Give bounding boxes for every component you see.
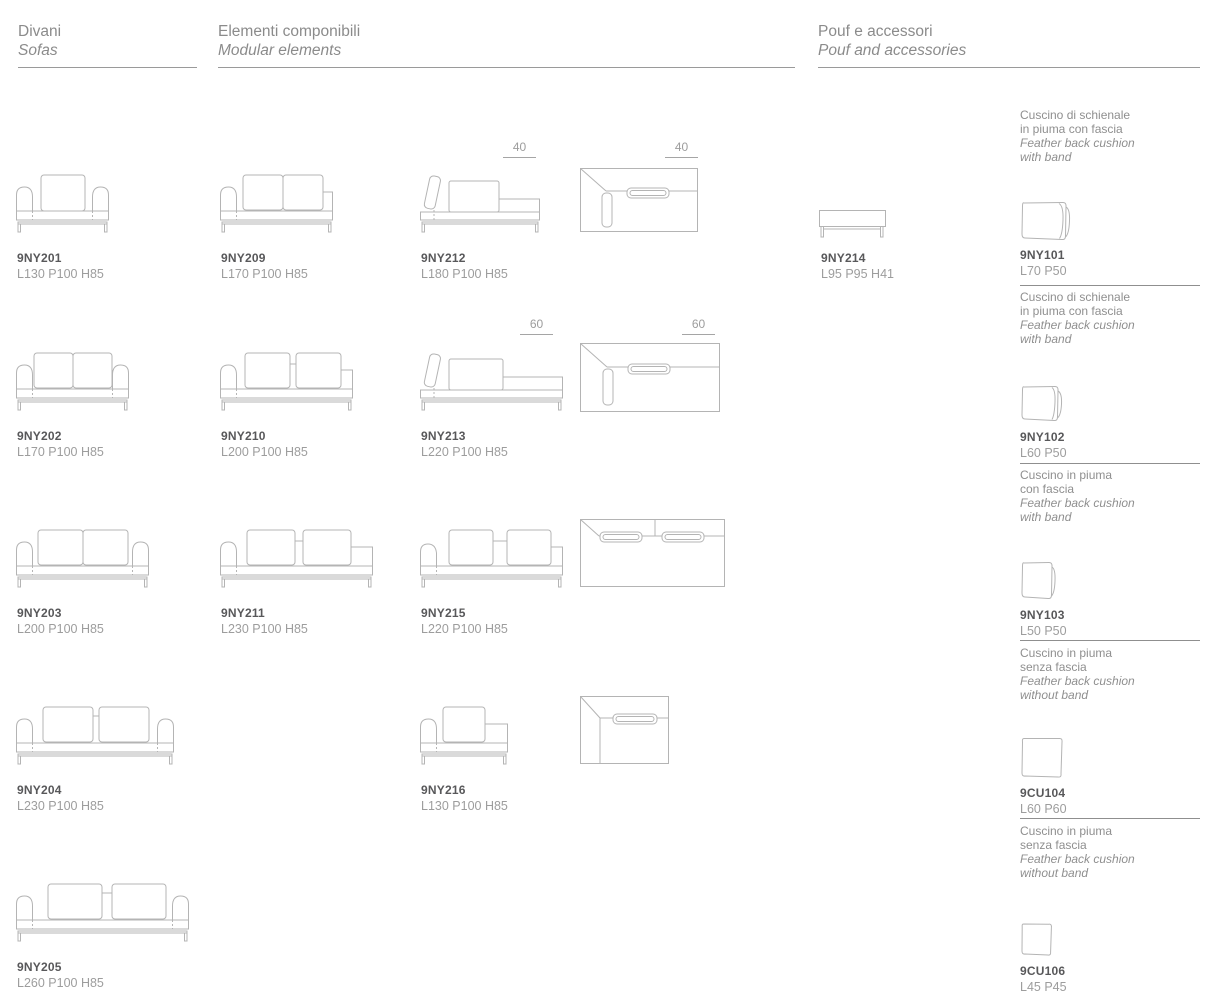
product-dims: L60 P50: [1020, 446, 1202, 460]
sofa-front-drawing: [419, 518, 564, 593]
product-card-9NY205: 9NY205 L260 P100 H85: [15, 872, 190, 990]
product-dims: L60 P60: [1020, 802, 1202, 816]
product-code: 9NY210: [221, 429, 354, 443]
accessory-block-9NY101: Cuscino di schienale in piuma con fascia…: [1020, 108, 1202, 278]
accessory-description-it: in piuma con fascia: [1020, 304, 1202, 318]
product-card-9NY209: 9NY209 L170 P100 H85: [219, 163, 334, 281]
product-dims: L95 P95 H41: [821, 267, 894, 281]
sofa-front-drawing: [419, 163, 541, 238]
sofa-plan-drawing-9NY216: [580, 696, 669, 769]
product-code: 9NY214: [821, 251, 894, 265]
product-code: 9NY103: [1020, 608, 1202, 622]
depth-dimension-label: 60: [682, 317, 715, 335]
section-rule-modular: [218, 67, 795, 68]
sofa-front-drawing: [419, 341, 564, 416]
sofa-front-drawing: [15, 518, 150, 593]
product-dims: L200 P100 H85: [17, 622, 150, 636]
product-card-9NY216: 9NY216 L130 P100 H85: [419, 695, 509, 813]
section-title-it: Divani: [18, 22, 61, 41]
product-dims: L170 P100 H85: [221, 267, 334, 281]
product-code: 9CU104: [1020, 786, 1202, 800]
accessory-description-en: with band: [1020, 332, 1202, 346]
product-dims: L130 P100 H85: [17, 267, 110, 281]
product-dims: L50 P50: [1020, 624, 1202, 638]
accessory-block-9NY103: Cuscino in piuma con fascia Feather back…: [1020, 468, 1202, 638]
product-card-9NY204: 9NY204 L230 P100 H85: [15, 695, 175, 813]
product-card-9NY212: 9NY212 L180 P100 H85: [419, 163, 541, 281]
accessory-block-9NY102: Cuscino di schienale in piuma con fascia…: [1020, 290, 1202, 460]
product-code: 9NY209: [221, 251, 334, 265]
accessory-description-en: Feather back cushion: [1020, 318, 1202, 332]
product-dims: L260 P100 H85: [17, 976, 190, 990]
product-code: 9NY211: [221, 606, 374, 620]
sofa-front-drawing: [15, 695, 175, 770]
product-dims: L180 P100 H85: [421, 267, 541, 281]
sofa-front-drawing: [15, 163, 110, 238]
sofa-plan-drawing-9NY215: [580, 519, 725, 592]
product-dims: L70 P50: [1020, 264, 1202, 278]
cushion-drawing: [1020, 880, 1202, 964]
accessory-description-en: with band: [1020, 510, 1202, 524]
product-dims: L130 P100 H85: [421, 799, 509, 813]
pouf-drawing: [819, 163, 894, 238]
product-code: 9NY102: [1020, 430, 1202, 444]
accessory-block-9CU104: Cuscino in piuma senza fascia Feather ba…: [1020, 646, 1202, 816]
accessory-description-en: Feather back cushion: [1020, 136, 1202, 150]
product-code: 9NY212: [421, 251, 541, 265]
accessory-description-it: Cuscino di schienale: [1020, 290, 1202, 304]
sofa-front-drawing: [15, 341, 130, 416]
accessory-description-en: Feather back cushion: [1020, 674, 1202, 688]
cushion-drawing: [1020, 346, 1202, 430]
catalog-page: { "colors": { "line": "#b4b4b4", "code_t…: [0, 0, 1218, 1002]
product-code: 9NY213: [421, 429, 564, 443]
section-title-en: Modular elements: [218, 41, 360, 60]
product-code: 9NY205: [17, 960, 190, 974]
product-dims: L220 P100 H85: [421, 445, 564, 459]
product-code: 9NY215: [421, 606, 564, 620]
sofa-plan-drawing-9NY212: [580, 168, 698, 237]
product-code: 9NY101: [1020, 248, 1202, 262]
cushion-drawing: [1020, 164, 1202, 248]
cushion-drawing: [1020, 524, 1202, 608]
section-rule-sofas: [18, 67, 197, 68]
section-header-pouf: Pouf e accessori Pouf and accessories: [818, 22, 966, 60]
cushion-drawing: [1020, 702, 1202, 786]
product-card-9NY203: 9NY203 L200 P100 H85: [15, 518, 150, 636]
sofa-front-drawing: [419, 695, 509, 770]
accessory-description-it: Cuscino in piuma: [1020, 468, 1202, 482]
product-dims: L230 P100 H85: [221, 622, 374, 636]
accessory-block-9CU106: Cuscino in piuma senza fascia Feather ba…: [1020, 824, 1202, 994]
product-card-9NY215: 9NY215 L220 P100 H85: [419, 518, 564, 636]
product-code: 9NY203: [17, 606, 150, 620]
accessory-divider: [1020, 285, 1200, 286]
depth-dimension-label: 40: [503, 140, 536, 158]
section-rule-pouf: [818, 67, 1200, 68]
product-dims: L230 P100 H85: [17, 799, 175, 813]
product-dims: L170 P100 H85: [17, 445, 130, 459]
accessory-divider: [1020, 640, 1200, 641]
product-card-9NY213: 9NY213 L220 P100 H85: [419, 341, 564, 459]
section-title-en: Sofas: [18, 41, 61, 60]
sofa-front-drawing: [219, 518, 374, 593]
product-card-9NY201: 9NY201 L130 P100 H85: [15, 163, 110, 281]
accessory-description-it: Cuscino in piuma: [1020, 824, 1202, 838]
sofa-front-drawing: [219, 163, 334, 238]
product-card-9NY211: 9NY211 L230 P100 H85: [219, 518, 374, 636]
product-code: 9NY202: [17, 429, 130, 443]
accessory-divider: [1020, 818, 1200, 819]
product-card-9NY210: 9NY210 L200 P100 H85: [219, 341, 354, 459]
depth-dimension-label: 40: [665, 140, 698, 158]
product-dims: L200 P100 H85: [221, 445, 354, 459]
sofa-front-drawing: [219, 341, 354, 416]
accessory-description-en: without band: [1020, 866, 1202, 880]
accessory-description-en: without band: [1020, 688, 1202, 702]
section-title-it: Elementi componibili: [218, 22, 360, 41]
sofa-front-drawing: [15, 872, 190, 947]
section-title-it: Pouf e accessori: [818, 22, 966, 41]
product-dims: L220 P100 H85: [421, 622, 564, 636]
section-title-en: Pouf and accessories: [818, 41, 966, 60]
accessory-divider: [1020, 463, 1200, 464]
section-header-sofas: Divani Sofas: [18, 22, 61, 60]
section-header-modular: Elementi componibili Modular elements: [218, 22, 360, 60]
accessory-description-it: senza fascia: [1020, 838, 1202, 852]
product-card-9NY214: 9NY214 L95 P95 H41: [819, 163, 894, 281]
accessory-description-it: Cuscino di schienale: [1020, 108, 1202, 122]
depth-dimension-label: 60: [520, 317, 553, 335]
product-dims: L45 P45: [1020, 980, 1202, 994]
product-code: 9NY216: [421, 783, 509, 797]
accessory-description-it: con fascia: [1020, 482, 1202, 496]
accessory-description-it: Cuscino in piuma: [1020, 646, 1202, 660]
accessory-description-en: with band: [1020, 150, 1202, 164]
accessory-description-it: in piuma con fascia: [1020, 122, 1202, 136]
product-code: 9NY204: [17, 783, 175, 797]
accessory-description-en: Feather back cushion: [1020, 496, 1202, 510]
product-card-9NY202: 9NY202 L170 P100 H85: [15, 341, 130, 459]
product-code: 9NY201: [17, 251, 110, 265]
accessory-description-it: senza fascia: [1020, 660, 1202, 674]
accessory-description-en: Feather back cushion: [1020, 852, 1202, 866]
product-code: 9CU106: [1020, 964, 1202, 978]
sofa-plan-drawing-9NY213: [580, 343, 720, 417]
